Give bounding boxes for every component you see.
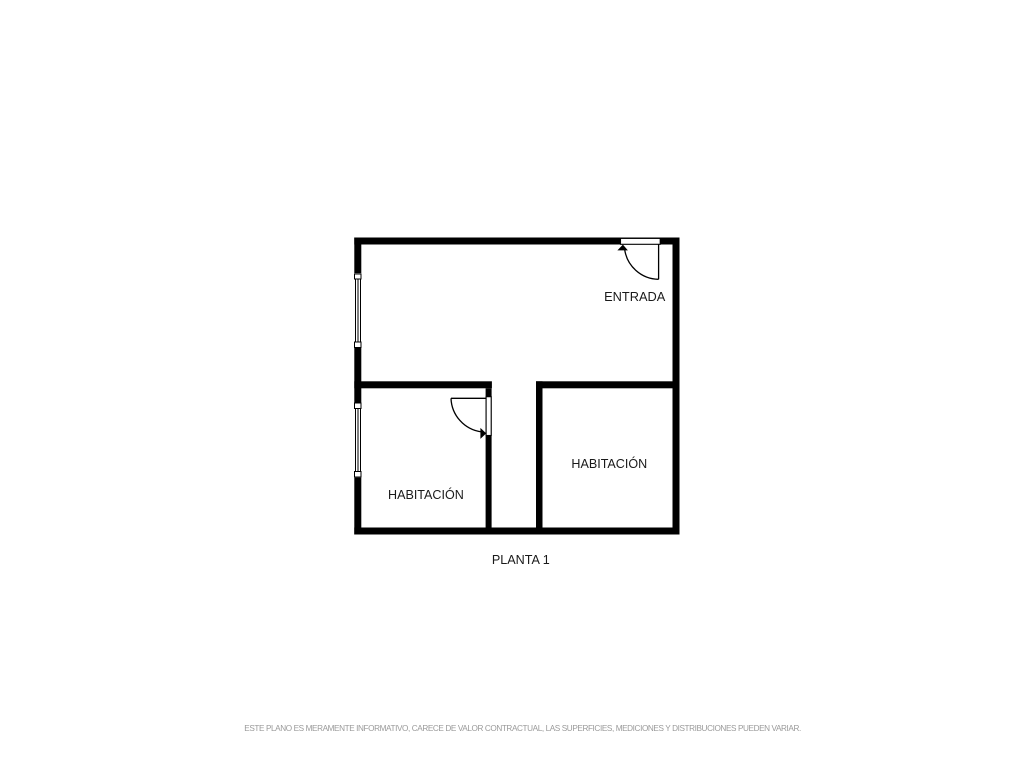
svg-text:HABITACIÓN: HABITACIÓN <box>388 487 464 502</box>
svg-text:ENTRADA: ENTRADA <box>604 289 666 304</box>
svg-text:HABITACIÓN: HABITACIÓN <box>571 456 647 471</box>
svg-text:ESTE PLANO ES MERAMENTE INFORM: ESTE PLANO ES MERAMENTE INFORMATIVO, CAR… <box>244 724 801 733</box>
svg-text:PLANTA 1: PLANTA 1 <box>492 553 550 567</box>
